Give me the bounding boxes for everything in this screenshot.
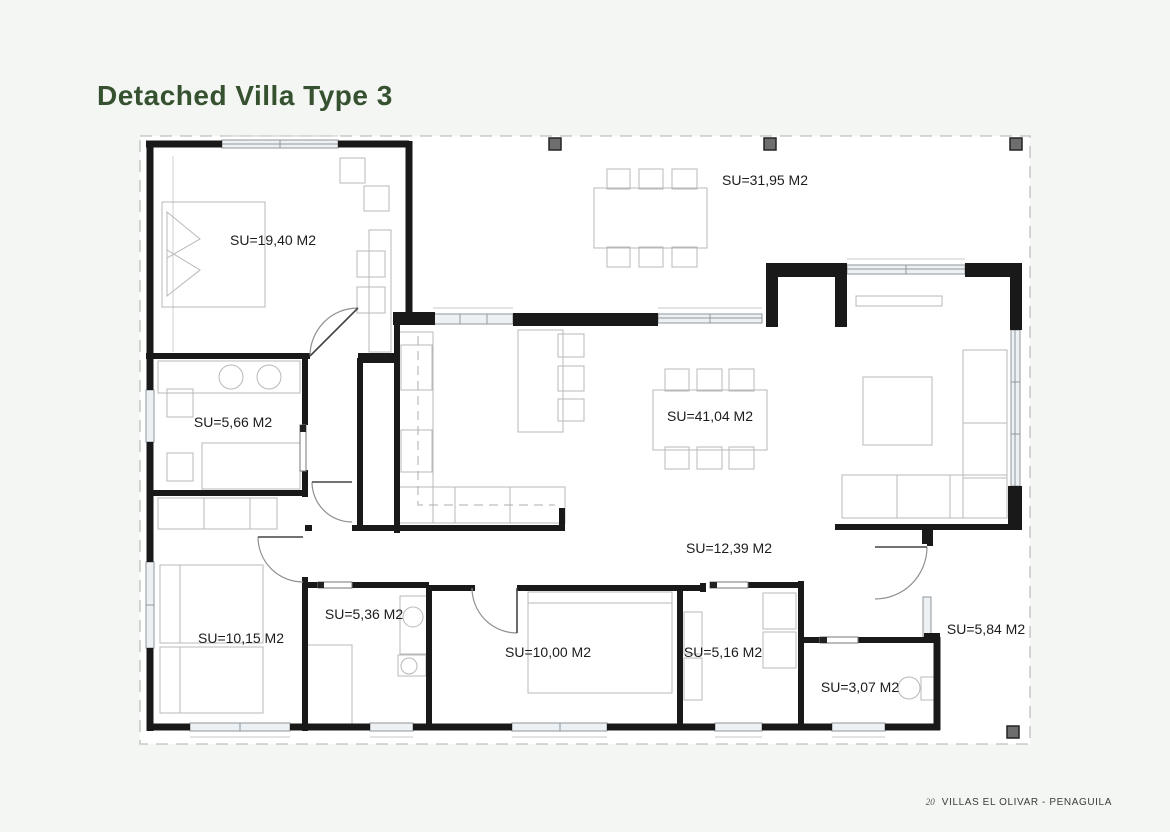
room-label-wc: SU=3,07 M2: [821, 679, 899, 695]
room-label-utility: SU=5,16 M2: [684, 644, 762, 660]
footer: 20VILLAS EL OLIVAR - PENAGUILA: [926, 792, 1112, 810]
room-label-bathroom-1: SU=5,66 M2: [194, 414, 272, 430]
room-label-bedroom-2: SU=10,15 M2: [198, 630, 284, 646]
room-label-hallway: SU=12,39 M2: [686, 540, 772, 556]
room-label-bedroom-3: SU=10,00 M2: [505, 644, 591, 660]
floorplan-drawing: SU=19,40 M2 SU=31,95 M2 SU=5,66 M2 SU=41…: [0, 0, 1170, 832]
footer-project-name: VILLAS EL OLIVAR - PENAGUILA: [942, 797, 1112, 808]
room-label-master-bedroom: SU=19,40 M2: [230, 232, 316, 248]
room-label-terrace: SU=31,95 M2: [722, 172, 808, 188]
room-label-bathroom-2: SU=5,36 M2: [325, 606, 403, 622]
room-label-porch: SU=5,84 M2: [947, 621, 1025, 637]
room-label-living-dining: SU=41,04 M2: [667, 408, 753, 424]
footer-page-number: 20: [926, 797, 935, 807]
